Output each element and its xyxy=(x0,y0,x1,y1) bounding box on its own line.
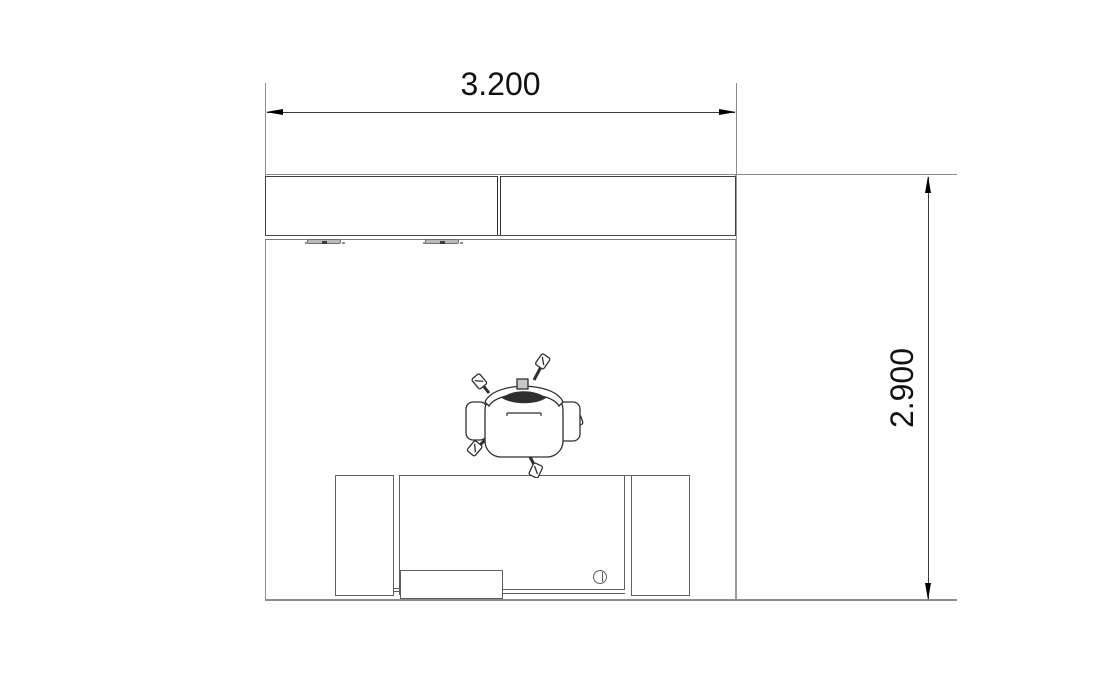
dimension-line-horizontal xyxy=(267,112,735,113)
cabinet-handle-left xyxy=(307,239,341,244)
dimension-arrow-right xyxy=(719,109,736,115)
cabinet-handle-right xyxy=(425,239,459,244)
dimension-arrow-left xyxy=(266,109,283,115)
desk-side-panel-left-foot-tick1 xyxy=(394,588,399,589)
desk-front-edge-strip xyxy=(503,589,625,594)
dimension-arrow-down xyxy=(925,583,931,600)
office-chair xyxy=(450,352,590,478)
chair-armrest-left xyxy=(466,402,487,440)
chair-caster-top-left xyxy=(471,373,489,393)
chair-caster-left-bottom xyxy=(467,440,485,457)
room-wall-bottom xyxy=(265,599,957,601)
cabinet-divider xyxy=(497,176,501,236)
chair-headrest-tab xyxy=(517,379,528,389)
desk-pedestal-left xyxy=(335,475,394,596)
dimension-arrow-up xyxy=(925,176,931,193)
dimension-label-width: 3.200 xyxy=(430,67,571,101)
dimension-extension-right-top xyxy=(736,83,737,175)
desk-pedestal-right xyxy=(631,475,690,596)
desk-side-panel-left-foot-tick2 xyxy=(394,591,399,592)
desk-side-panel-left-line1 xyxy=(393,475,394,595)
desk-cable-grommet xyxy=(593,570,607,584)
dimension-line-vertical xyxy=(928,177,929,599)
desk-cable-grommet-chord xyxy=(602,572,603,582)
dimension-label-depth: 2.900 xyxy=(885,318,919,458)
chair-seat xyxy=(485,394,563,457)
room-wall-top xyxy=(265,174,957,175)
chair-caster-bottom xyxy=(529,457,544,478)
desk-side-panel-right-line1 xyxy=(624,475,625,590)
drawing-canvas: 3.200 2.900 xyxy=(0,0,1108,690)
room-wall-left xyxy=(265,83,266,601)
chair-caster-top-right xyxy=(534,353,551,380)
desk-keyboard-tray xyxy=(400,570,503,599)
